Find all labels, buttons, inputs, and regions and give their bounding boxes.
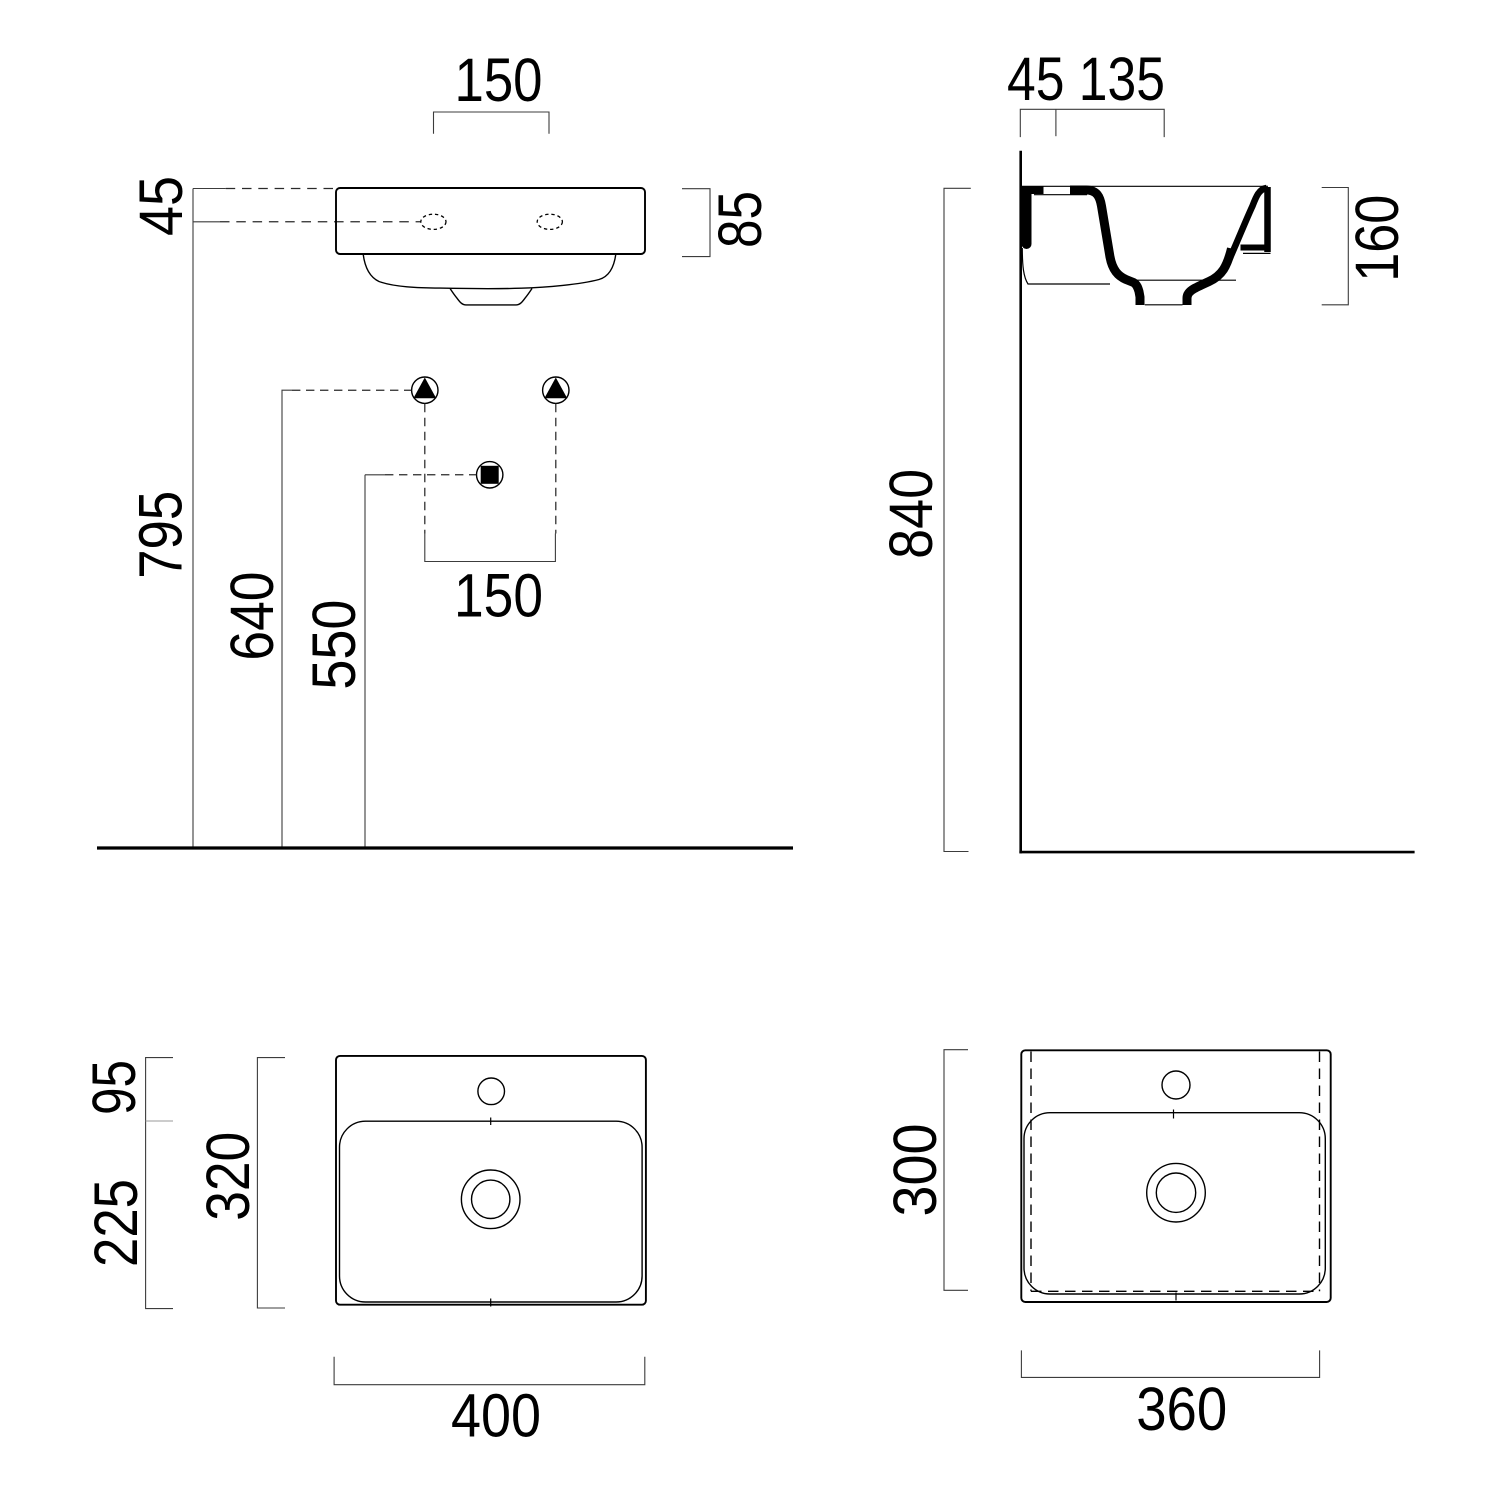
svg-text:150: 150	[454, 562, 543, 630]
svg-text:400: 400	[451, 1382, 541, 1450]
svg-text:550: 550	[300, 600, 368, 690]
svg-text:95: 95	[80, 1060, 148, 1115]
svg-text:150: 150	[455, 46, 543, 114]
svg-text:840: 840	[877, 469, 945, 559]
svg-text:320: 320	[194, 1132, 262, 1221]
svg-text:225: 225	[82, 1179, 150, 1267]
svg-text:45: 45	[127, 176, 195, 236]
svg-text:795: 795	[127, 491, 195, 579]
svg-text:85: 85	[706, 191, 774, 248]
svg-text:45 135: 45 135	[1007, 45, 1165, 113]
svg-text:160: 160	[1343, 195, 1411, 282]
svg-text:360: 360	[1136, 1375, 1227, 1443]
svg-text:300: 300	[881, 1124, 949, 1217]
svg-text:640: 640	[218, 572, 286, 661]
